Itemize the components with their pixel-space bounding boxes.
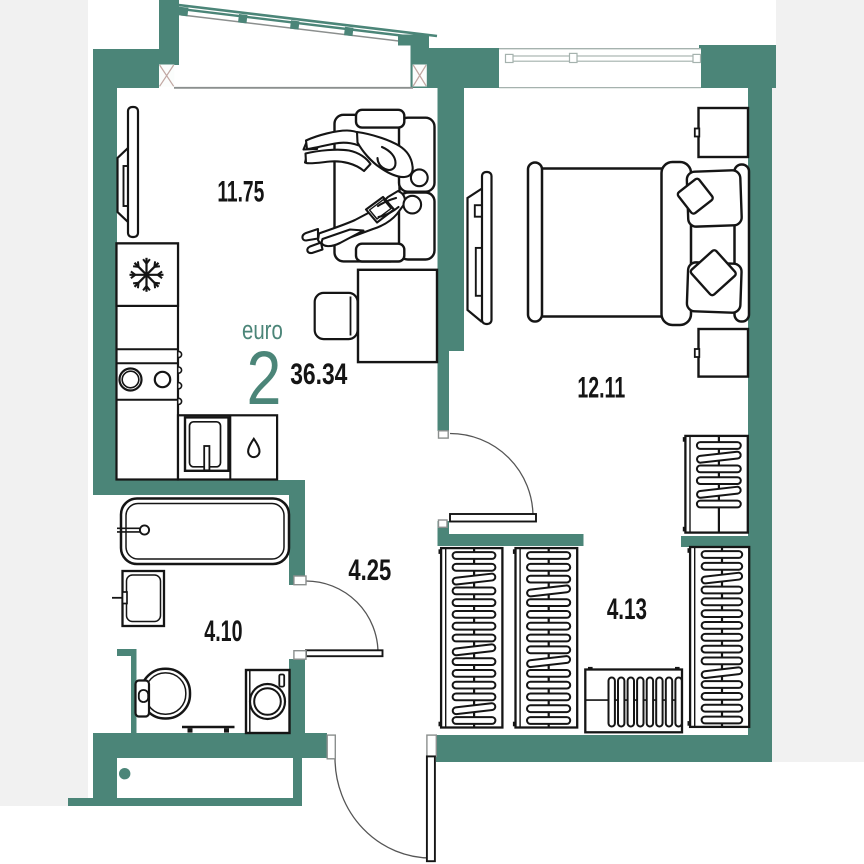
svg-text:4.25: 4.25	[348, 553, 391, 587]
svg-text:4.13: 4.13	[607, 594, 647, 626]
svg-text:36.34: 36.34	[290, 357, 347, 391]
svg-text:11.75: 11.75	[217, 175, 264, 208]
svg-text:12.11: 12.11	[577, 372, 625, 405]
svg-text:4.10: 4.10	[204, 615, 242, 648]
svg-text:2: 2	[246, 335, 281, 420]
